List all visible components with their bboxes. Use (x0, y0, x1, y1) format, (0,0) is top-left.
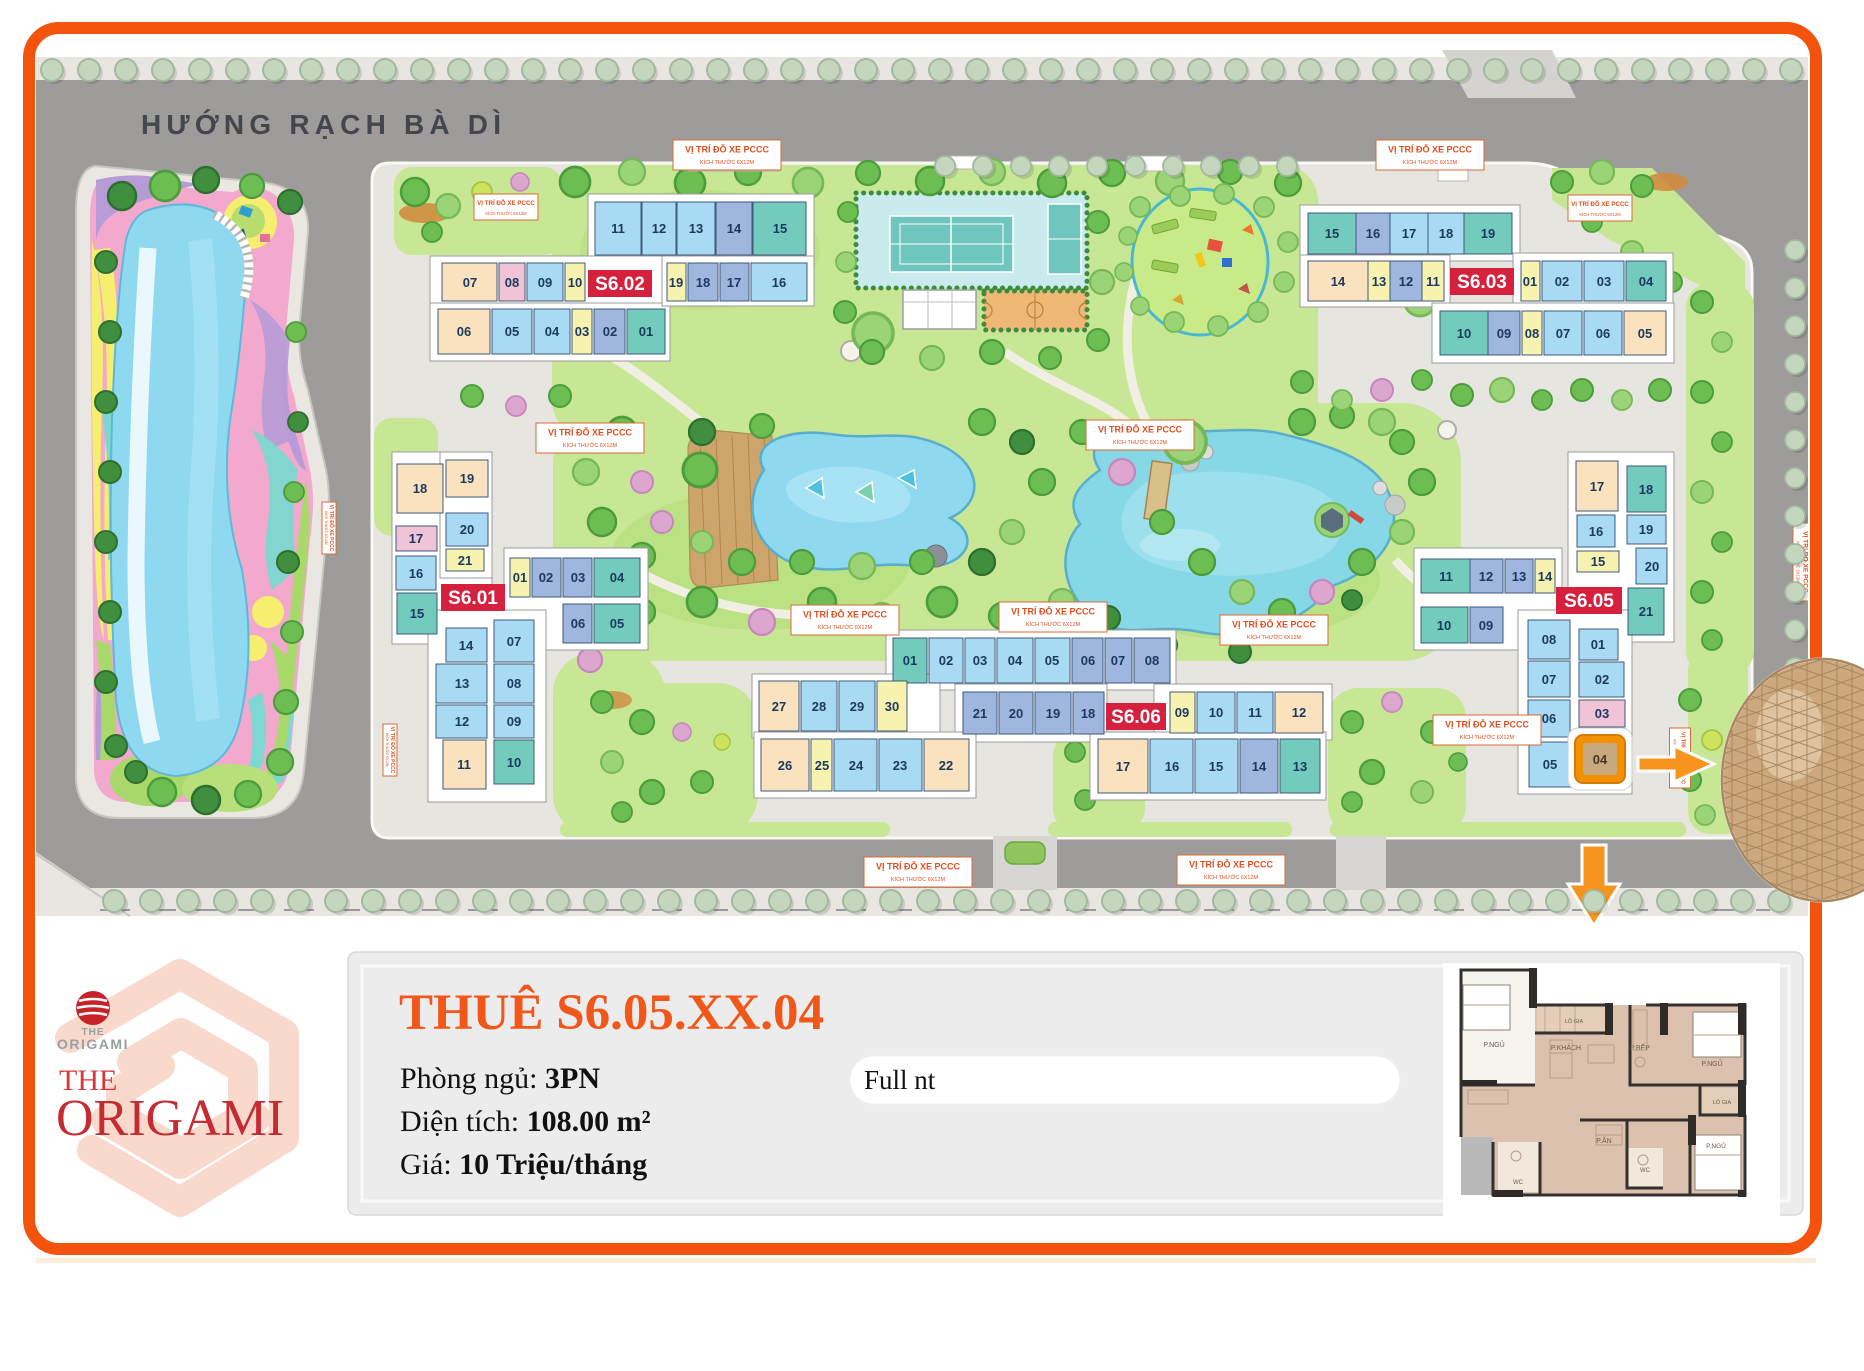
svg-text:16: 16 (409, 566, 423, 581)
svg-text:KÍCH THƯỚC 6X12M: KÍCH THƯỚC 6X12M (1247, 634, 1302, 641)
svg-text:KÍCH THƯỚC 6X12M: KÍCH THƯỚC 6X12M (1204, 874, 1259, 881)
svg-text:08: 08 (505, 275, 519, 290)
svg-text:09: 09 (507, 714, 521, 729)
svg-text:15: 15 (1591, 554, 1605, 569)
svg-text:03: 03 (1595, 706, 1609, 721)
svg-text:11: 11 (1439, 569, 1453, 584)
svg-text:VỊ TRÍ ĐỖ XE PCCC: VỊ TRÍ ĐỖ XE PCCC (328, 505, 336, 552)
svg-text:17: 17 (727, 275, 741, 290)
svg-text:07: 07 (1111, 653, 1125, 668)
svg-text:27: 27 (772, 699, 786, 714)
svg-text:05: 05 (1543, 757, 1557, 772)
svg-text:LÔ GIA: LÔ GIA (1713, 1099, 1732, 1106)
svg-text:VỊ TRÍ ĐỖ XE PCCC: VỊ TRÍ ĐỖ XE PCCC (1571, 200, 1629, 208)
svg-text:05: 05 (505, 324, 519, 339)
svg-text:13: 13 (1372, 274, 1386, 289)
svg-text:16: 16 (772, 275, 786, 290)
svg-text:06: 06 (1596, 326, 1610, 341)
svg-text:15: 15 (410, 606, 424, 621)
svg-text:10: 10 (1437, 618, 1451, 633)
svg-text:11: 11 (611, 221, 625, 236)
svg-text:17: 17 (409, 531, 423, 546)
svg-text:03: 03 (575, 324, 589, 339)
svg-text:WC: WC (1513, 1180, 1524, 1186)
svg-text:16: 16 (1366, 226, 1380, 241)
svg-text:01: 01 (1523, 274, 1537, 289)
svg-text:01: 01 (903, 653, 917, 668)
svg-text:06: 06 (1542, 711, 1556, 726)
svg-text:08: 08 (1542, 632, 1556, 647)
svg-text:16: 16 (1589, 524, 1603, 539)
svg-text:02: 02 (539, 570, 553, 585)
svg-text:VỊ TRÍ ĐỖ XE PCCC: VỊ TRÍ ĐỖ XE PCCC (1189, 859, 1274, 870)
svg-text:KÍCH THƯỚC 6X12M: KÍCH THƯỚC 6X12M (1460, 734, 1515, 741)
svg-text:23: 23 (893, 758, 907, 773)
svg-text:14: 14 (1538, 569, 1553, 584)
svg-text:16: 16 (1165, 759, 1179, 774)
svg-text:04: 04 (545, 324, 560, 339)
svg-text:04: 04 (610, 570, 625, 585)
svg-text:13: 13 (455, 676, 469, 691)
svg-text:07: 07 (507, 634, 521, 649)
svg-text:21: 21 (973, 706, 987, 721)
svg-text:Phòng ngủ: 3PN: Phòng ngủ: 3PN (400, 1062, 600, 1095)
svg-text:17: 17 (1590, 479, 1604, 494)
svg-text:Diện tích: 108.00 m²: Diện tích: 108.00 m² (400, 1105, 651, 1138)
svg-text:01: 01 (513, 570, 527, 585)
svg-text:08: 08 (507, 676, 521, 691)
svg-text:KÍCH THƯỚC 6X12M: KÍCH THƯỚC 6X12M (385, 733, 390, 767)
svg-text:07: 07 (463, 275, 477, 290)
svg-text:10: 10 (1457, 326, 1471, 341)
svg-text:VỊ TRÍ ĐỖ XE PCCC: VỊ TRÍ ĐỖ XE PCCC (1232, 619, 1317, 630)
svg-text:HƯỚNG RẠCH BÀ DÌ: HƯỚNG RẠCH BÀ DÌ (141, 109, 506, 140)
svg-text:15: 15 (1325, 226, 1339, 241)
svg-text:VỊ TRÍ ĐỖ XE PCCC: VỊ TRÍ ĐỖ XE PCCC (548, 427, 633, 438)
svg-text:14: 14 (459, 638, 474, 653)
svg-text:21: 21 (1639, 604, 1653, 619)
svg-text:18: 18 (1081, 706, 1095, 721)
svg-text:S6.05: S6.05 (1564, 591, 1614, 612)
svg-text:12: 12 (1292, 705, 1306, 720)
svg-text:14: 14 (1252, 759, 1267, 774)
svg-text:04: 04 (1639, 274, 1654, 289)
svg-text:24: 24 (849, 758, 864, 773)
svg-text:12: 12 (455, 714, 469, 729)
svg-text:17: 17 (1402, 226, 1416, 241)
svg-text:06: 06 (457, 324, 471, 339)
svg-text:11: 11 (1248, 705, 1262, 720)
svg-text:20: 20 (1009, 706, 1023, 721)
svg-text:THUÊ S6.05.XX.04: THUÊ S6.05.XX.04 (399, 985, 824, 1041)
svg-text:P.KHÁCH: P.KHÁCH (1551, 1043, 1581, 1052)
svg-text:15: 15 (1209, 759, 1223, 774)
svg-text:05: 05 (1045, 653, 1059, 668)
svg-text:P.ĂN: P.ĂN (1596, 1136, 1611, 1145)
svg-text:P.NGỦ: P.NGỦ (1701, 1059, 1722, 1068)
svg-text:VỊ TRÍ ĐỖ XE PCCC: VỊ TRÍ ĐỖ XE PCCC (1098, 424, 1183, 435)
svg-text:12: 12 (1479, 569, 1493, 584)
svg-text:02: 02 (939, 653, 953, 668)
svg-text:19: 19 (669, 275, 683, 290)
svg-text:S6.02: S6.02 (595, 274, 645, 295)
svg-text:WC: WC (1640, 1168, 1651, 1174)
svg-text:21: 21 (458, 553, 472, 568)
svg-text:13: 13 (1293, 759, 1307, 774)
svg-text:02: 02 (1555, 274, 1569, 289)
svg-text:P.NGỦ: P.NGỦ (1706, 1141, 1726, 1150)
svg-text:05: 05 (610, 616, 624, 631)
svg-text:28: 28 (812, 699, 826, 714)
svg-text:S6.01: S6.01 (448, 588, 498, 609)
svg-text:VỊ TRÍ ĐỖ XE PCCC: VỊ TRÍ ĐỖ XE PCCC (876, 861, 961, 872)
svg-text:12: 12 (652, 221, 666, 236)
svg-text:12: 12 (1399, 274, 1413, 289)
svg-text:18: 18 (1439, 226, 1453, 241)
svg-text:01: 01 (639, 324, 653, 339)
svg-text:19: 19 (1046, 706, 1060, 721)
svg-text:22: 22 (939, 758, 953, 773)
svg-text:KÍCH THƯỚC 6X12M: KÍCH THƯỚC 6X12M (1403, 159, 1458, 166)
svg-text:19: 19 (1639, 522, 1653, 537)
svg-text:KÍCH THƯỚC 6X12M: KÍCH THƯỚC 6X12M (700, 159, 755, 166)
svg-text:03: 03 (571, 570, 585, 585)
svg-text:KÍCH THƯỚC 6X12M: KÍCH THƯỚC 6X12M (1579, 212, 1621, 217)
svg-text:09: 09 (538, 275, 552, 290)
svg-text:09: 09 (1479, 618, 1493, 633)
svg-text:06: 06 (1081, 653, 1095, 668)
svg-text:P.NGỦ: P.NGỦ (1483, 1040, 1504, 1049)
svg-text:10: 10 (568, 275, 582, 290)
svg-text:06: 06 (571, 616, 585, 631)
svg-text:KÍCH THƯỚC 6X12M: KÍCH THƯỚC 6X12M (818, 624, 873, 631)
svg-text:KÍCH THƯỚC 6X12M: KÍCH THƯỚC 6X12M (1026, 621, 1081, 628)
svg-text:KÍCH THƯỚC 6X12M: KÍCH THƯỚC 6X12M (324, 511, 329, 545)
svg-text:VỊ TRÍ ĐỖ XE PCCC: VỊ TRÍ ĐỖ XE PCCC (1388, 144, 1473, 155)
svg-text:02: 02 (603, 324, 617, 339)
svg-text:04: 04 (1008, 653, 1023, 668)
svg-text:25: 25 (815, 758, 829, 773)
svg-text:S6.06: S6.06 (1111, 707, 1161, 728)
svg-text:S6.03: S6.03 (1457, 272, 1507, 293)
svg-text:14: 14 (727, 221, 742, 236)
svg-text:19: 19 (460, 471, 474, 486)
svg-text:10: 10 (1209, 705, 1223, 720)
svg-text:07: 07 (1542, 672, 1556, 687)
svg-text:Full nt: Full nt (864, 1065, 936, 1095)
svg-text:VỊ TRÍ ĐỖ XE PCCC: VỊ TRÍ ĐỖ XE PCCC (477, 199, 535, 207)
svg-text:13: 13 (689, 221, 703, 236)
svg-text:09: 09 (1497, 326, 1511, 341)
svg-text:07: 07 (1556, 326, 1570, 341)
svg-text:11: 11 (1426, 274, 1440, 289)
svg-text:VỊ TRÍ ĐỖ XE PCCC: VỊ TRÍ ĐỖ XE PCCC (389, 727, 397, 774)
svg-text:18: 18 (413, 481, 427, 496)
svg-text:02: 02 (1595, 672, 1609, 687)
svg-text:04: 04 (1593, 752, 1608, 767)
svg-text:29: 29 (850, 699, 864, 714)
svg-text:19: 19 (1481, 226, 1495, 241)
svg-text:20: 20 (1645, 559, 1659, 574)
svg-text:20: 20 (460, 522, 474, 537)
svg-text:09: 09 (1175, 705, 1189, 720)
svg-text:03: 03 (1597, 274, 1611, 289)
svg-text:VỊ TRÍ ĐỖ XE PCCC: VỊ TRÍ ĐỖ XE PCCC (685, 144, 770, 155)
svg-text:01: 01 (1591, 637, 1605, 652)
svg-text:11: 11 (457, 757, 471, 772)
svg-text:VỊ TRÍ ĐỖ XE PCCC: VỊ TRÍ ĐỖ XE PCCC (803, 609, 888, 620)
svg-text:KÍCH THƯỚC 6X12M: KÍCH THƯỚC 6X12M (1113, 439, 1168, 446)
svg-text:13: 13 (1512, 569, 1526, 584)
svg-text:KÍCH THƯỚC 6X12M: KÍCH THƯỚC 6X12M (485, 211, 527, 216)
svg-text:Giá: 10 Triệu/tháng: Giá: 10 Triệu/tháng (400, 1148, 647, 1181)
svg-text:03: 03 (973, 653, 987, 668)
svg-text:14: 14 (1331, 274, 1346, 289)
svg-text:26: 26 (778, 758, 792, 773)
svg-text:18: 18 (696, 275, 710, 290)
svg-text:KÍCH THƯỚC 6X12M: KÍCH THƯỚC 6X12M (891, 876, 946, 883)
svg-text:08: 08 (1145, 653, 1159, 668)
svg-text:VỊ TRÍ ĐỖ XE PCCC: VỊ TRÍ ĐỖ XE PCCC (1445, 719, 1530, 730)
svg-text:ORIGAMI: ORIGAMI (56, 1090, 284, 1147)
svg-text:30: 30 (885, 699, 899, 714)
svg-text:KÍCH THƯỚC 6X12M: KÍCH THƯỚC 6X12M (563, 442, 618, 449)
svg-text:LÔ GIA: LÔ GIA (1565, 1018, 1584, 1025)
svg-text:10: 10 (507, 755, 521, 770)
svg-text:05: 05 (1638, 326, 1652, 341)
svg-text:18: 18 (1639, 482, 1653, 497)
svg-text:17: 17 (1116, 759, 1130, 774)
svg-text:15: 15 (773, 221, 787, 236)
svg-text:08: 08 (1525, 326, 1539, 341)
svg-text:VỊ TRÍ ĐỖ XE PCCC: VỊ TRÍ ĐỖ XE PCCC (1011, 606, 1096, 617)
svg-text:ORIGAMI: ORIGAMI (57, 1036, 129, 1052)
